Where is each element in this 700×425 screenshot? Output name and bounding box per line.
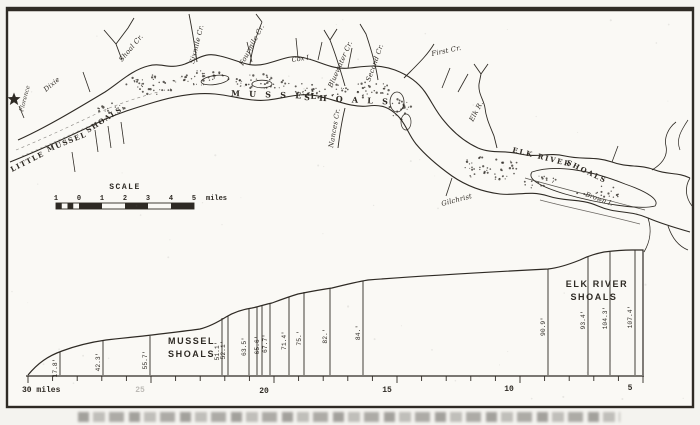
stipple-dot <box>187 81 188 82</box>
stipple-dot <box>175 81 176 82</box>
stipple-dot <box>218 71 220 73</box>
stipple-dot <box>387 89 389 91</box>
stipple-dot <box>600 194 602 196</box>
stipple-dot <box>613 187 615 189</box>
noise-speckle <box>29 387 30 388</box>
noise-speckle <box>214 154 216 156</box>
stipple-dot <box>302 91 303 92</box>
stipple-dot <box>196 70 197 71</box>
stipple-dot <box>297 92 299 94</box>
stipple-dot <box>469 175 471 177</box>
stipple-dot <box>248 84 250 86</box>
noise-speckle <box>616 179 618 181</box>
stipple-dot <box>335 84 337 86</box>
elevation-label: 65.6' <box>254 336 261 355</box>
stipple-dot <box>553 178 554 179</box>
noise-speckle <box>169 239 170 240</box>
noise-speckle <box>167 256 169 258</box>
stipple-dot <box>196 72 198 74</box>
stipple-dot <box>201 84 202 85</box>
stipple-dot <box>107 110 109 112</box>
stipple-dot <box>125 83 127 85</box>
stipple-dot <box>495 176 497 178</box>
stipple-dot <box>306 88 307 89</box>
noise-speckle <box>11 291 12 292</box>
stipple-dot <box>341 89 343 91</box>
noise-speckle <box>374 338 376 340</box>
stipple-dot <box>617 193 619 195</box>
stipple-dot <box>501 162 503 164</box>
stipple-dot <box>136 81 138 83</box>
stipple-dot <box>401 119 402 120</box>
stipple-dot <box>311 90 313 92</box>
noise-speckle <box>58 348 60 350</box>
stipple-dot <box>266 87 268 89</box>
figure-canvas: Florence Dixie LITTLE MUSSEL SHOALS M U … <box>0 0 700 425</box>
stipple-dot <box>105 111 106 112</box>
stipple-dot <box>479 167 481 169</box>
stipple-dot <box>295 85 297 87</box>
stipple-dot <box>97 107 99 109</box>
noise-speckle <box>617 375 619 377</box>
stipple-dot <box>111 102 113 104</box>
stipple-dot <box>371 92 372 93</box>
stipple-dot <box>398 102 400 104</box>
stipple-dot <box>296 93 297 94</box>
stipple-dot <box>270 86 272 88</box>
stipple-dot <box>245 84 247 86</box>
noise-speckle <box>419 159 420 160</box>
stipple-dot <box>402 107 404 109</box>
stipple-dot <box>240 86 241 87</box>
stipple-dot <box>337 85 338 86</box>
stipple-dot <box>515 168 517 170</box>
elevation-label: 55.7' <box>142 351 149 370</box>
noise-speckle <box>636 212 638 214</box>
elevation-label: 17.8' <box>52 359 59 378</box>
figure-muscle-shoals-map-and-profile: Florence Dixie LITTLE MUSSEL SHOALS M U … <box>0 0 700 425</box>
stipple-dot <box>541 176 543 178</box>
stipple-dot <box>202 79 204 81</box>
stipple-dot <box>480 156 482 158</box>
stipple-dot <box>543 176 544 177</box>
noise-speckle <box>621 398 623 400</box>
stipple-dot <box>170 88 171 89</box>
stipple-dot <box>465 167 466 168</box>
elevation-label: 71.4' <box>281 331 288 350</box>
stipple-dot <box>266 74 268 76</box>
scale-tick-label: 0 <box>77 195 81 203</box>
stipple-dot <box>364 87 365 88</box>
profile-section-elk-2: SHOALS <box>570 292 617 302</box>
elevation-label: 52.1' <box>220 341 227 360</box>
noise-speckle <box>437 208 439 210</box>
noise-speckle <box>243 85 245 87</box>
noise-speckle <box>503 165 504 166</box>
stipple-dot <box>295 91 297 93</box>
stipple-dot <box>311 94 312 95</box>
stipple-dot <box>495 178 496 179</box>
noise-speckle <box>342 19 343 20</box>
stipple-dot <box>471 162 472 163</box>
noise-speckle <box>683 398 684 399</box>
noise-speckle <box>587 372 589 374</box>
noise-speckle <box>82 355 84 357</box>
noise-speckle <box>455 380 457 382</box>
stipple-dot <box>274 87 276 89</box>
stipple-dot <box>103 108 104 109</box>
stipple-dot <box>260 83 262 85</box>
noise-speckle <box>37 183 38 184</box>
stipple-dot <box>470 176 471 177</box>
stipple-dot <box>161 89 163 91</box>
noise-speckle <box>656 42 658 44</box>
stipple-dot <box>341 88 342 89</box>
stipple-dot <box>362 94 363 95</box>
stipple-dot <box>473 168 475 170</box>
stipple-dot <box>202 75 204 77</box>
stipple-dot <box>153 79 154 80</box>
noise-speckle <box>336 24 337 25</box>
stipple-dot <box>510 161 511 162</box>
stipple-dot <box>400 108 402 110</box>
stipple-dot <box>401 101 403 103</box>
noise-speckle <box>410 160 412 162</box>
stipple-dot <box>141 85 142 86</box>
stipple-dot <box>142 86 143 87</box>
noise-speckle <box>499 364 500 365</box>
stipple-dot <box>387 93 389 95</box>
noise-speckle <box>431 349 433 351</box>
stipple-dot <box>337 93 339 95</box>
stipple-dot <box>510 161 512 163</box>
noise-speckle <box>357 58 359 60</box>
stipple-dot <box>382 93 383 94</box>
stipple-dot <box>483 172 485 174</box>
stipple-dot <box>173 80 175 82</box>
mile-axis-label: 20 <box>259 387 269 396</box>
stipple-dot <box>344 91 346 93</box>
stipple-dot <box>122 107 124 109</box>
noise-speckle <box>190 37 191 38</box>
stipple-dot <box>383 88 385 90</box>
scale-tick-label: 4 <box>169 195 173 203</box>
stipple-dot <box>170 89 172 91</box>
stipple-dot <box>181 76 183 78</box>
noise-speckle <box>667 101 668 102</box>
stipple-dot <box>546 177 548 179</box>
noise-speckle <box>531 398 533 400</box>
stipple-dot <box>494 173 495 174</box>
stipple-dot <box>212 75 214 77</box>
stipple-dot <box>367 93 368 94</box>
stipple-dot <box>203 84 204 85</box>
stipple-dot <box>264 83 266 85</box>
stipple-dot <box>393 115 394 116</box>
stipple-dot <box>153 85 155 87</box>
stipple-dot <box>194 76 195 77</box>
stipple-dot <box>600 191 602 193</box>
scale-tick-label: 5 <box>192 195 196 203</box>
stipple-dot <box>380 92 382 94</box>
stipple-dot <box>149 88 151 90</box>
noise-speckle <box>180 77 181 78</box>
stipple-dot <box>495 159 497 161</box>
stipple-dot <box>262 73 264 75</box>
stipple-dot <box>282 79 284 81</box>
stipple-dot <box>138 82 140 84</box>
noise-speckle <box>240 197 241 198</box>
stipple-dot <box>250 79 252 81</box>
stipple-dot <box>403 104 405 106</box>
stipple-dot <box>364 82 366 84</box>
stipple-dot <box>509 167 511 169</box>
noise-speckle <box>108 358 110 360</box>
stipple-dot <box>538 176 539 177</box>
noise-speckle <box>136 205 138 207</box>
stipple-dot <box>319 91 321 93</box>
stipple-dot <box>137 79 139 81</box>
stipple-dot <box>469 163 470 164</box>
stipple-dot <box>357 91 358 92</box>
stipple-dot <box>617 196 619 198</box>
noise-speckle <box>347 305 349 307</box>
stipple-dot <box>516 162 518 164</box>
stipple-dot <box>555 179 557 181</box>
stipple-dot <box>466 159 468 161</box>
stipple-dot <box>524 181 526 183</box>
stipple-dot <box>236 81 237 82</box>
stipple-dot <box>345 87 347 89</box>
elevation-label: 90.9' <box>540 317 547 336</box>
stipple-dot <box>288 83 289 84</box>
noise-speckle <box>564 292 565 293</box>
stipple-dot <box>204 73 205 74</box>
stipple-dot <box>136 79 137 80</box>
stipple-dot <box>410 105 412 107</box>
stipple-dot <box>513 173 515 175</box>
noise-speckle <box>323 166 324 167</box>
stipple-dot <box>506 176 507 177</box>
noise-speckle <box>140 214 142 216</box>
stipple-dot <box>311 84 313 86</box>
stipple-dot <box>151 76 153 78</box>
stipple-dot <box>307 93 309 95</box>
profile-section-elk-1: ELK RIVER <box>566 279 628 289</box>
stipple-dot <box>142 83 144 85</box>
stipple-dot <box>107 108 108 109</box>
stipple-dot <box>392 103 393 104</box>
stipple-dot <box>303 94 305 96</box>
stipple-dot <box>474 173 476 175</box>
stipple-dot <box>486 170 487 171</box>
stipple-dot <box>396 111 398 113</box>
stipple-dot <box>266 83 267 84</box>
stipple-dot <box>108 112 110 114</box>
mile-axis-label: 15 <box>382 386 392 395</box>
stipple-dot <box>202 73 204 75</box>
stipple-dot <box>159 89 160 90</box>
noise-speckle <box>96 35 97 36</box>
noise-speckle <box>303 88 305 90</box>
stipple-dot <box>123 109 124 110</box>
noise-speckle <box>202 202 203 203</box>
noise-speckle <box>507 351 508 352</box>
stipple-dot <box>154 75 156 77</box>
scale-tick-label: 2 <box>123 195 127 203</box>
caption-blurred-text <box>78 412 620 422</box>
stipple-dot <box>469 168 470 169</box>
stipple-dot <box>193 84 194 85</box>
stipple-dot <box>395 114 396 115</box>
stipple-dot <box>607 192 609 194</box>
stipple-dot <box>134 81 135 82</box>
stipple-dot <box>200 70 201 71</box>
stipple-dot <box>406 102 407 103</box>
noise-speckle <box>610 19 612 21</box>
stipple-dot <box>279 87 280 88</box>
stipple-dot <box>119 105 120 106</box>
stipple-dot <box>257 80 258 81</box>
elevation-label: 67.7' <box>262 334 269 353</box>
stipple-dot <box>471 166 473 168</box>
stipple-dot <box>236 78 238 80</box>
stipple-dot <box>315 88 316 89</box>
stipple-dot <box>386 85 388 87</box>
stipple-dot <box>399 100 401 102</box>
stipple-dot <box>325 95 326 96</box>
stipple-dot <box>487 167 489 169</box>
stipple-dot <box>115 106 116 107</box>
noise-speckle <box>322 233 323 234</box>
stipple-dot <box>603 196 605 198</box>
noise-speckle <box>221 224 222 225</box>
stipple-dot <box>498 178 500 180</box>
elevation-label: 82.' <box>322 328 329 343</box>
profile-section-mussel-2: SHOALS <box>168 349 215 359</box>
stipple-dot <box>214 77 215 78</box>
noise-speckle <box>317 165 319 167</box>
noise-speckle <box>27 302 28 303</box>
stipple-dot <box>249 87 251 89</box>
stipple-dot <box>552 182 553 183</box>
stipple-dot <box>249 75 250 76</box>
stipple-dot <box>237 83 239 85</box>
stipple-dot <box>376 92 378 94</box>
stipple-dot <box>186 77 187 78</box>
stipple-dot <box>139 88 141 90</box>
scale-tick-label: 1 <box>54 195 58 203</box>
stipple-dot <box>597 192 599 194</box>
stipple-dot <box>186 74 188 76</box>
stipple-dot <box>532 185 533 186</box>
scale-tick-label: 1 <box>100 195 104 203</box>
profile-section-mussel-1: MUSSEL <box>168 336 215 346</box>
mile-axis-label: 25 <box>135 386 145 395</box>
stipple-dot <box>389 106 391 108</box>
mile-axis-label: 5 <box>628 384 633 393</box>
elevation-label: 107.4' <box>627 306 634 329</box>
stipple-dot <box>471 169 473 171</box>
scale-title: SCALE <box>109 183 141 192</box>
mile-axis-label: 10 <box>504 385 514 394</box>
stipple-dot <box>156 94 157 95</box>
stipple-dot <box>384 86 385 87</box>
stipple-dot <box>164 90 165 91</box>
stipple-dot <box>142 79 143 80</box>
stipple-dot <box>531 180 533 182</box>
stipple-dot <box>487 172 489 174</box>
stipple-dot <box>167 89 169 91</box>
stipple-dot <box>511 165 513 167</box>
stipple-dot <box>241 81 242 82</box>
stipple-dot <box>152 74 153 75</box>
noise-speckle <box>577 132 578 133</box>
noise-speckle <box>73 382 75 384</box>
noise-speckle <box>562 396 564 398</box>
stipple-dot <box>269 79 271 81</box>
stipple-dot <box>531 187 532 188</box>
scale-tick-label: 3 <box>146 195 150 203</box>
stipple-dot <box>333 94 334 95</box>
noise-speckle <box>270 75 272 77</box>
noise-speckle <box>288 75 290 77</box>
stipple-dot <box>365 90 367 92</box>
stipple-dot <box>540 185 542 187</box>
stipple-dot <box>583 193 585 195</box>
stipple-dot <box>512 167 514 169</box>
stipple-dot <box>318 97 320 99</box>
noise-speckle <box>122 172 123 173</box>
stipple-dot <box>227 78 229 80</box>
stipple-dot <box>283 85 284 86</box>
stipple-dot <box>251 84 252 85</box>
stipple-dot <box>601 186 602 187</box>
stipple-dot <box>305 95 307 97</box>
scale-unit: miles <box>206 195 227 203</box>
stipple-dot <box>266 76 268 78</box>
stipple-dot <box>239 79 241 81</box>
elevation-label: 84.' <box>355 325 362 340</box>
elevation-label: 63.5' <box>241 337 248 356</box>
stipple-dot <box>212 71 214 73</box>
stipple-dot <box>316 93 318 95</box>
stipple-dot <box>209 80 210 81</box>
stipple-dot <box>383 83 384 84</box>
stipple-dot <box>273 83 275 85</box>
stipple-dot <box>332 95 333 96</box>
noise-speckle <box>425 33 427 35</box>
noise-speckle <box>644 284 646 286</box>
noise-speckle <box>554 203 555 204</box>
noise-speckle <box>43 363 45 365</box>
stipple-dot <box>482 165 484 167</box>
stipple-dot <box>164 82 166 84</box>
stipple-dot <box>212 79 213 80</box>
mile-axis-label: 30 miles <box>22 386 61 395</box>
noise-speckle <box>31 91 32 92</box>
stipple-dot <box>481 156 483 158</box>
stipple-dot <box>576 192 578 194</box>
stipple-dot <box>324 89 326 91</box>
stipple-dot <box>505 178 506 179</box>
noise-speckle <box>507 29 508 30</box>
stipple-dot <box>131 77 133 79</box>
stipple-dot <box>553 181 554 182</box>
stipple-dot <box>396 98 398 100</box>
stipple-dot <box>408 107 409 108</box>
stipple-dot <box>360 83 362 85</box>
